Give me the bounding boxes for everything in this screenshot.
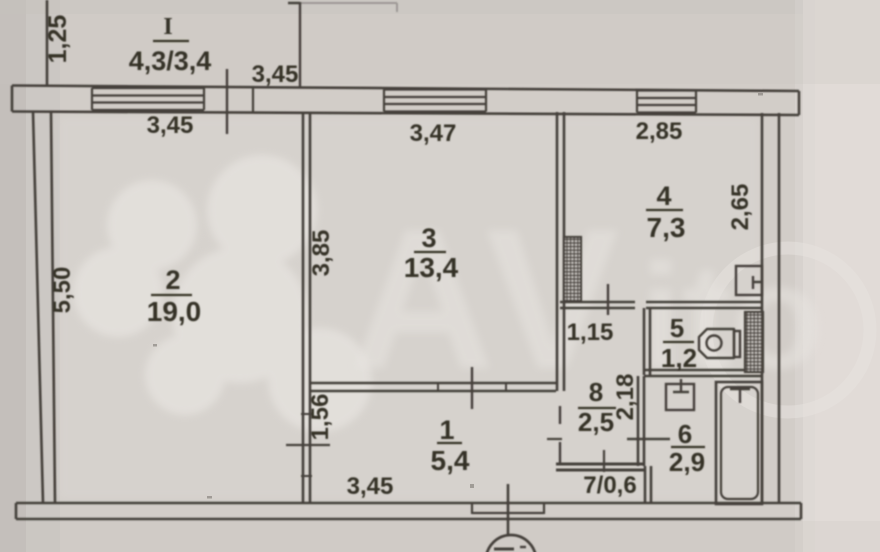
svg-text:3,85: 3,85 — [308, 230, 335, 277]
svg-text:2,65: 2,65 — [727, 184, 754, 231]
svg-text:2: 2 — [165, 265, 180, 295]
svg-text:1: 1 — [439, 415, 454, 445]
svg-text:3: 3 — [421, 223, 436, 253]
svg-text:3,45: 3,45 — [147, 112, 194, 139]
svg-text:4: 4 — [656, 181, 671, 211]
svg-text:13,4: 13,4 — [404, 252, 459, 283]
svg-text:7,3: 7,3 — [647, 212, 686, 243]
svg-text:6: 6 — [678, 419, 692, 449]
svg-text:4,3/3,4: 4,3/3,4 — [129, 46, 212, 76]
svg-text:1,25: 1,25 — [44, 15, 72, 64]
svg-text:7/0,6: 7/0,6 — [583, 472, 636, 499]
svg-text:2,18: 2,18 — [612, 374, 639, 421]
svg-text:19,0: 19,0 — [147, 296, 202, 327]
svg-text:2,85: 2,85 — [636, 118, 683, 145]
svg-text:AV: AV — [350, 188, 625, 411]
svg-text:3,47: 3,47 — [410, 120, 457, 147]
svg-text:5,4: 5,4 — [431, 445, 470, 476]
svg-text:5,50: 5,50 — [49, 267, 76, 314]
svg-text:3,45: 3,45 — [347, 473, 394, 500]
svg-text:2,9: 2,9 — [669, 447, 705, 477]
svg-text:8: 8 — [589, 377, 603, 407]
svg-text:5: 5 — [670, 313, 684, 343]
svg-text:1,2: 1,2 — [661, 343, 697, 373]
svg-text:I: I — [163, 14, 172, 40]
svg-text:2,5: 2,5 — [578, 407, 614, 437]
svg-text:3,45: 3,45 — [252, 61, 299, 88]
svg-text:1,15: 1,15 — [567, 319, 614, 346]
svg-text:1,56: 1,56 — [307, 394, 334, 441]
